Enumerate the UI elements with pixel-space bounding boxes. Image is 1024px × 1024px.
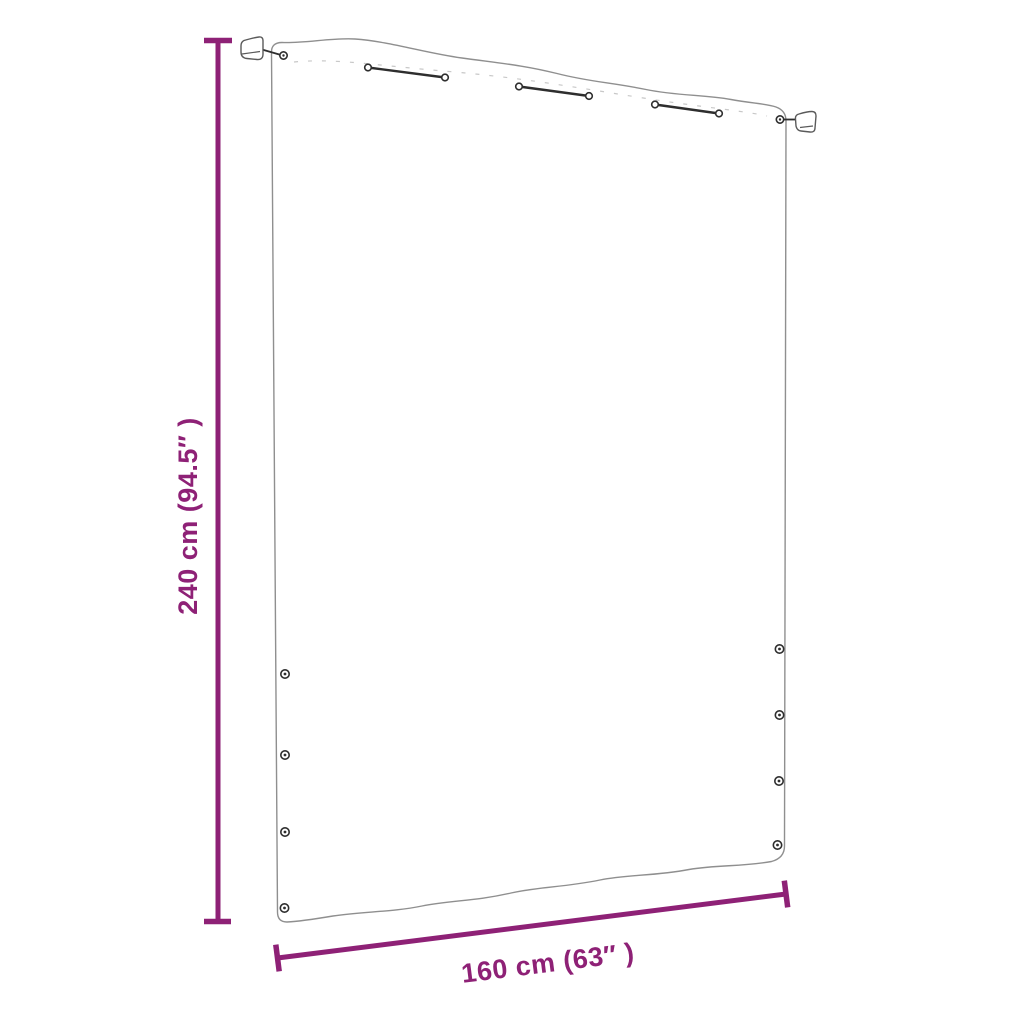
- grommet-hole: [284, 673, 287, 676]
- grommet-hole: [776, 844, 779, 847]
- grommet-hole: [778, 780, 781, 783]
- right-bracket-icon: [795, 112, 816, 133]
- grommet-icon: [516, 83, 523, 90]
- grommet-hole: [282, 54, 284, 56]
- grommet-hole: [284, 831, 287, 834]
- grommet-icon: [365, 64, 372, 71]
- width-dimension-right-cap: [784, 881, 787, 908]
- height-dimension-label: 240 cm (94.5″ ): [173, 417, 203, 615]
- height-dimension: 240 cm (94.5″ ): [173, 41, 232, 922]
- right-wall-bracket: [783, 112, 816, 133]
- grommet-hole: [283, 907, 286, 910]
- grommet-hole: [778, 714, 781, 717]
- grommet-hole: [779, 118, 781, 120]
- width-dimension-left-cap: [276, 945, 279, 972]
- product-dimension-diagram: 240 cm (94.5″ ) 160 cm (63″ ): [0, 0, 1024, 1024]
- left-bracket-icon: [241, 37, 263, 60]
- grommet-icon: [586, 93, 593, 100]
- grommet-icon: [716, 110, 723, 117]
- diagram-svg: 240 cm (94.5″ ) 160 cm (63″ ): [0, 0, 1024, 1024]
- width-dimension-label: 160 cm (63″ ): [460, 937, 636, 989]
- grommet-icon: [442, 74, 449, 81]
- grommet-hole: [778, 648, 781, 651]
- grommet-hole: [284, 754, 287, 757]
- grommet-icon: [652, 101, 659, 108]
- curtain-panel-outline: [271, 39, 786, 922]
